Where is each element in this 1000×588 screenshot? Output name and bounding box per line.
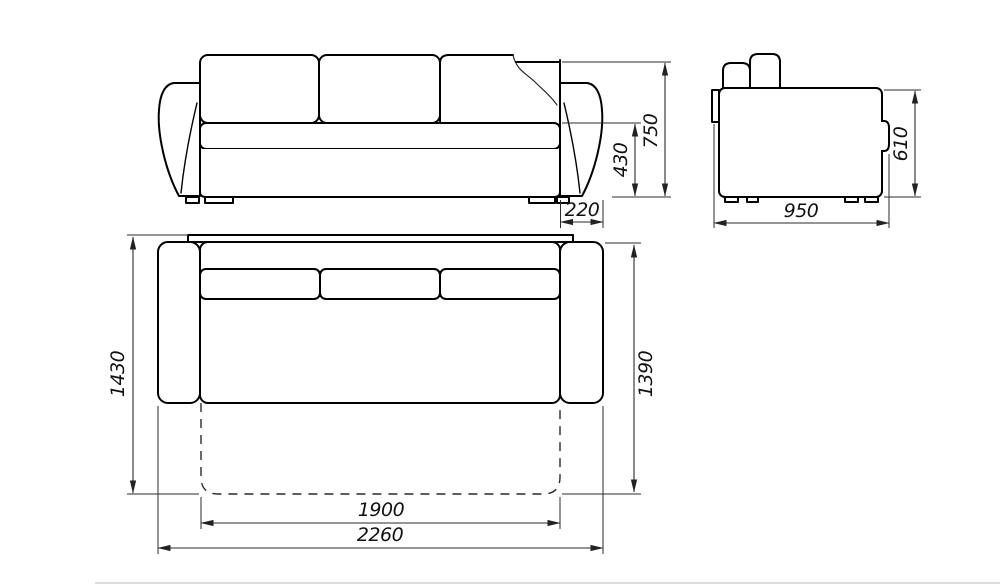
- plan-armrest-left: [158, 242, 200, 403]
- front-back-cushion-2: [319, 55, 440, 123]
- dim-label-1430: 1430: [107, 350, 129, 397]
- dim-label-610: 610: [890, 126, 912, 161]
- front-leg: [205, 197, 233, 203]
- dim-label-430: 430: [610, 142, 632, 177]
- sofa-technical-drawing: 750 430 220 950: [0, 0, 1000, 588]
- plan-back-cushion-3: [440, 269, 560, 299]
- plan-armrest-right: [560, 242, 603, 403]
- side-seat-front-edge: [881, 121, 889, 151]
- side-view: 950 610: [712, 54, 921, 228]
- front-leg: [186, 197, 199, 203]
- front-view: 750 430 220: [159, 55, 671, 228]
- plan-backrest-strip: [188, 235, 573, 242]
- side-leg: [725, 197, 738, 202]
- dimension-front-armrest-width: 220: [561, 199, 604, 228]
- plan-back-cushion-2: [320, 269, 440, 299]
- side-leg: [845, 197, 858, 202]
- side-leg: [747, 197, 758, 202]
- front-back-cushion-3: [440, 55, 557, 123]
- front-armrest-right: [560, 83, 602, 196]
- plan-sleeping-area-dashed: [201, 403, 560, 494]
- front-leg: [529, 197, 555, 203]
- dim-label-1900: 1900: [358, 499, 405, 521]
- dimension-plan-overall-width: 2260: [158, 406, 603, 554]
- side-leg: [865, 197, 878, 202]
- front-back-cushion-1: [200, 55, 319, 123]
- drawing-svg: 750 430 220 950: [0, 0, 1000, 588]
- side-body: [719, 88, 882, 197]
- dimension-side-height: 610: [884, 90, 921, 197]
- plan-seat-body: [200, 242, 560, 403]
- dim-label-950: 950: [784, 200, 819, 222]
- front-armrest-left: [159, 83, 200, 196]
- front-base-panel: [200, 149, 560, 197]
- plan-back-cushion-1: [200, 269, 320, 299]
- side-armrest-edge: [712, 90, 719, 122]
- plan-view: 1430 1390 1900 2260: [107, 235, 657, 554]
- side-headrest-cushion: [750, 54, 780, 88]
- dim-label-220: 220: [565, 199, 600, 221]
- dim-label-1390: 1390: [635, 350, 657, 397]
- side-back-cushion: [723, 63, 750, 88]
- front-seat-cushion: [200, 123, 560, 149]
- dim-label-750: 750: [640, 113, 662, 148]
- dim-label-2260: 2260: [357, 524, 404, 546]
